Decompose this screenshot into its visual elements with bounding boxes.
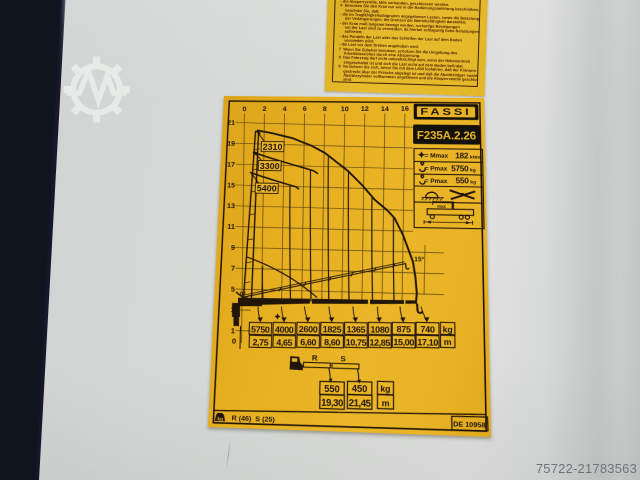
svg-text:19: 19 — [227, 141, 235, 148]
svg-text:7: 7 — [231, 265, 236, 273]
svg-text:10,75: 10,75 — [346, 337, 368, 348]
svg-text:19,30: 19,30 — [321, 398, 344, 409]
svg-text:= Mmax: = Mmax — [425, 153, 449, 160]
svg-text:kg: kg — [443, 324, 454, 334]
svg-text:6: 6 — [303, 106, 307, 113]
svg-text:16: 16 — [401, 106, 409, 113]
svg-text:m: m — [382, 398, 390, 409]
svg-text:15,00: 15,00 — [393, 337, 415, 348]
svg-text:875: 875 — [397, 324, 412, 335]
svg-text:5400: 5400 — [257, 184, 278, 194]
svg-text:2600: 2600 — [299, 324, 319, 335]
svg-text:9: 9 — [231, 244, 236, 252]
svg-text:10: 10 — [341, 106, 349, 113]
svg-text:S: S — [340, 356, 346, 364]
svg-text:R (46) S (25): R (46) S (25) — [231, 414, 275, 424]
svg-text:12: 12 — [361, 106, 369, 113]
svg-text:5750: 5750 — [251, 324, 271, 335]
svg-text:m: m — [444, 337, 452, 347]
svg-text:182: 182 — [455, 151, 468, 161]
svg-text:21,45: 21,45 — [349, 398, 372, 409]
svg-text:3300: 3300 — [260, 162, 281, 172]
svg-text:2310: 2310 — [263, 143, 283, 152]
svg-text:11: 11 — [227, 224, 235, 232]
svg-text:kg: kg — [470, 179, 476, 184]
svg-text:F235A.2.26: F235A.2.26 — [417, 130, 477, 143]
svg-text:FASSI: FASSI — [420, 106, 471, 117]
svg-text:4: 4 — [283, 106, 287, 113]
svg-text:13: 13 — [227, 203, 236, 210]
svg-text:DE 10958: DE 10958 — [453, 421, 486, 430]
svg-text:0: 0 — [232, 338, 237, 346]
svg-text:kg: kg — [380, 384, 391, 395]
svg-text:1080: 1080 — [370, 324, 390, 335]
svg-text:4000: 4000 — [275, 324, 295, 335]
svg-text:8,60: 8,60 — [324, 337, 341, 348]
svg-text:14: 14 — [381, 106, 389, 113]
svg-text:0°: 0° — [240, 292, 246, 299]
svg-text:2: 2 — [262, 106, 267, 113]
svg-text:17,10: 17,10 — [417, 337, 439, 348]
svg-text:12,85: 12,85 — [369, 337, 391, 348]
svg-text:17: 17 — [227, 161, 236, 168]
svg-text:1: 1 — [231, 328, 236, 336]
svg-text:= Pmax: = Pmax — [425, 178, 449, 185]
svg-text:8: 8 — [323, 106, 327, 113]
svg-text:15: 15 — [227, 182, 236, 189]
svg-text:= Pmax: = Pmax — [425, 166, 449, 173]
svg-text:kNm: kNm — [470, 154, 481, 159]
svg-text:kg: kg — [217, 415, 223, 421]
svg-text:740: 740 — [420, 324, 435, 335]
svg-text:max: max — [437, 205, 447, 209]
svg-text:R: R — [312, 355, 318, 363]
svg-text:5750: 5750 — [451, 164, 469, 174]
svg-text:2,75: 2,75 — [252, 337, 269, 348]
svg-text:550: 550 — [456, 176, 469, 186]
svg-text:1365: 1365 — [346, 324, 366, 335]
svg-text:kg: kg — [470, 167, 476, 172]
svg-text:0: 0 — [242, 106, 247, 113]
svg-text:450: 450 — [352, 384, 368, 395]
svg-text:15°: 15° — [414, 257, 425, 264]
svg-text:550: 550 — [324, 384, 340, 395]
svg-text:1825: 1825 — [323, 324, 343, 335]
svg-text:5: 5 — [231, 286, 236, 294]
svg-text:6,60: 6,60 — [300, 337, 317, 348]
svg-text:4,65: 4,65 — [276, 337, 293, 348]
